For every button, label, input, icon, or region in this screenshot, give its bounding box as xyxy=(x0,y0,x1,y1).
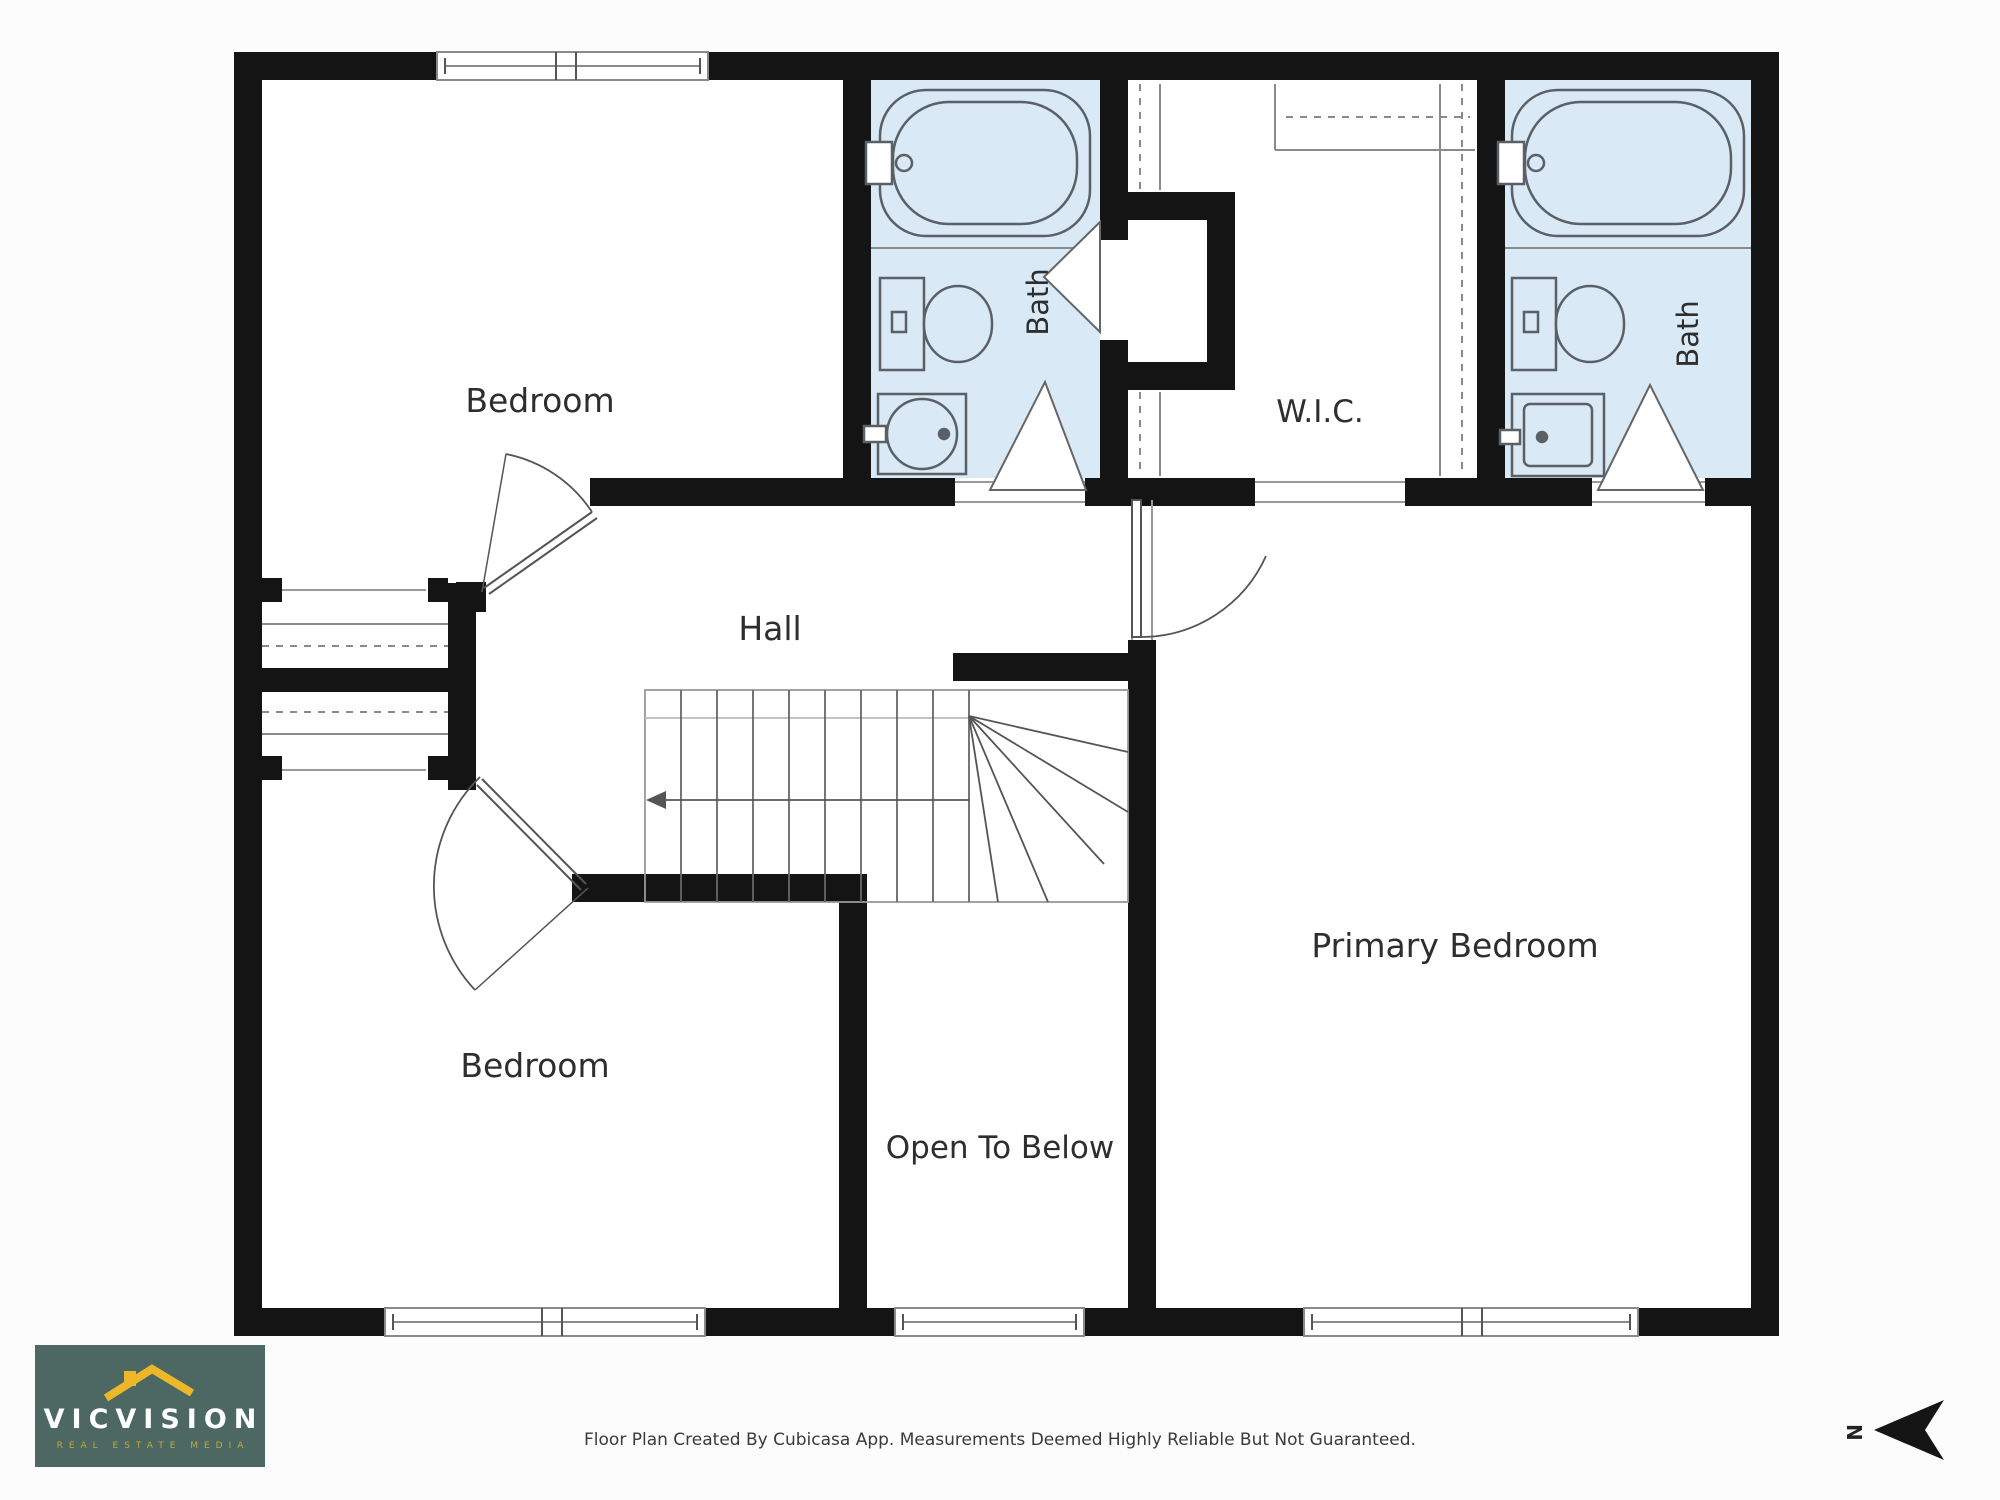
linen-niche xyxy=(1128,220,1207,362)
north-arrow-shape xyxy=(1874,1400,1944,1460)
north-arrow-icon: N xyxy=(1842,1394,1962,1466)
room-label-bath-right: Bath xyxy=(1671,300,1705,367)
window-top-bedroom xyxy=(437,52,708,80)
room-label-bedroom-bottom: Bedroom xyxy=(460,1046,609,1085)
room-label-bedroom-top: Bedroom xyxy=(465,381,614,420)
vanity-sink-icon xyxy=(1500,394,1604,476)
room-label-hall: Hall xyxy=(738,609,801,648)
roof-icon xyxy=(100,1362,200,1402)
floor-plan-drawing: Bedroom Bath W.I.C. Bath Hall Primary Be… xyxy=(0,0,2000,1500)
bathtub-icon xyxy=(866,90,1090,236)
window-open-below xyxy=(895,1308,1084,1336)
room-label-bath-left: Bath xyxy=(1021,268,1055,335)
bathtub-icon xyxy=(1498,90,1744,236)
floor-plan-page: Bedroom Bath W.I.C. Bath Hall Primary Be… xyxy=(0,0,2000,1500)
footer-disclaimer: Floor Plan Created By Cubicasa App. Meas… xyxy=(0,1430,2000,1450)
sink-icon xyxy=(864,394,966,474)
room-label-open-below: Open To Below xyxy=(886,1130,1114,1166)
room-label-wic: W.I.C. xyxy=(1276,394,1363,430)
window-primary-bedroom xyxy=(1304,1308,1638,1336)
north-label: N xyxy=(1842,1424,1866,1441)
window-bottom-bedroom xyxy=(385,1308,705,1336)
room-label-primary: Primary Bedroom xyxy=(1311,926,1598,965)
